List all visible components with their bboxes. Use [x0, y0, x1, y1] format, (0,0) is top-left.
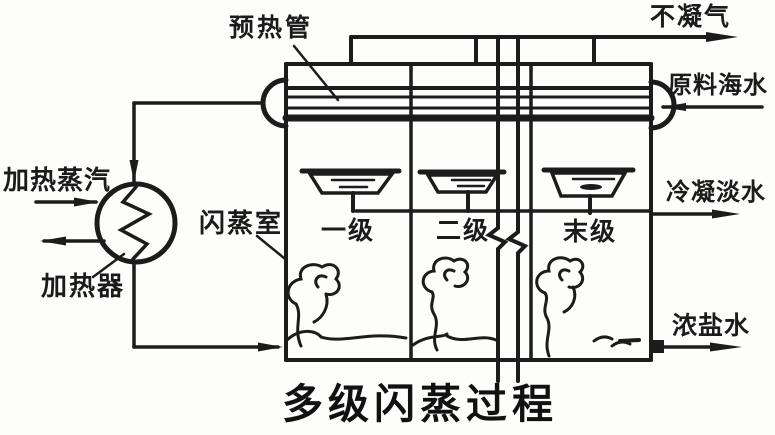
- tube-left-bend: [263, 80, 286, 126]
- fresh-water-arrowhead: [712, 210, 740, 219]
- msf-process-diagram: 预热管 不凝气 原料海水 冷凝淡水 浓盐水 加热蒸汽 加热器 闪蒸室 一级 二级…: [0, 0, 775, 435]
- label-stage-last: 末级: [563, 219, 617, 244]
- heated-brine-arrowhead: [258, 343, 283, 352]
- non-condensable-gas-arrowhead: [706, 32, 738, 42]
- condensate-tray-stage1: [302, 171, 399, 211]
- diagram-title: 多级闪蒸过程: [282, 384, 558, 425]
- label-preheat-tube: 预热管: [229, 15, 313, 40]
- label-flash-chamber: 闪蒸室: [199, 211, 283, 237]
- label-concentrated-brine: 浓盐水: [672, 313, 750, 338]
- label-stage-first: 一级: [321, 218, 375, 243]
- label-heating-steam: 加热蒸汽: [3, 168, 111, 194]
- diagram-lineart: [0, 0, 775, 435]
- vapour-plume-last-stage: [537, 258, 583, 356]
- heater-inlet-down-arrowhead: [130, 160, 139, 182]
- brine-arrowhead: [710, 343, 742, 352]
- steam-condensate-arrowhead: [40, 237, 66, 246]
- heating-steam-arrowhead: [74, 198, 99, 207]
- label-condensed-fresh-water: 冷凝淡水: [666, 180, 766, 204]
- label-stage-second: 二级: [436, 218, 490, 243]
- condensate-tray-last-stage: [544, 170, 633, 213]
- label-heater: 加热器: [41, 274, 125, 300]
- water-surface-waves: [287, 331, 639, 346]
- brine-nozzle: [649, 340, 664, 353]
- vent-ducts: [351, 37, 722, 64]
- preheat-tube-lines: [286, 88, 651, 118]
- label-feed-seawater: 原料海水: [668, 73, 768, 97]
- label-non-condensable-gas: 不凝气: [650, 4, 731, 29]
- condensate-tray-stage2: [420, 172, 504, 211]
